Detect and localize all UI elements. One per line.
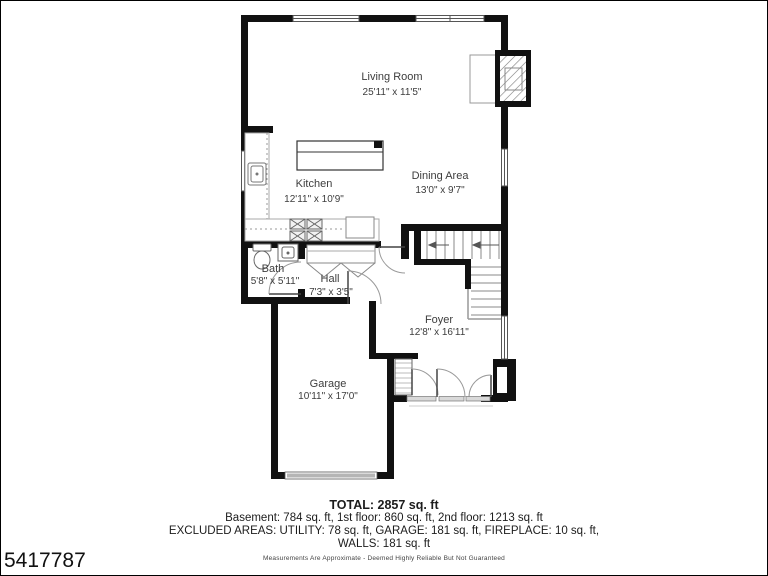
bath-sink-fixture — [278, 244, 298, 261]
label-kitchen: Kitchen — [296, 178, 333, 190]
listing-id: 5417787 — [4, 549, 86, 573]
dims-kitchen: 12'11" x 10'9" — [284, 194, 344, 205]
disclaimer-text: Measurements Are Approximate - Deemed Hi… — [1, 555, 767, 562]
label-garage: Garage — [310, 378, 347, 390]
walls-area: WALLS: 181 sq. ft — [1, 538, 767, 551]
excluded-areas: EXCLUDED AREAS: UTILITY: 78 sq. ft, GARA… — [1, 525, 767, 538]
label-foyer: Foyer — [425, 314, 453, 326]
bifold-door-right — [341, 263, 375, 277]
door-hall — [348, 271, 381, 304]
dims-foyer: 12'8" x 16'11" — [409, 327, 469, 338]
label-hall: Hall — [321, 273, 340, 285]
stair-arrows — [429, 242, 499, 248]
garage-door — [285, 472, 377, 479]
dims-dining-area: 13'0" x 9'7" — [415, 185, 465, 196]
floor-plan-page: Living Room 25'11" x 11'5" Kitchen 12'11… — [0, 0, 768, 576]
refrigerator-fixture — [346, 217, 374, 238]
foyer-closet — [395, 359, 412, 395]
dims-garage: 10'11" x 17'0" — [298, 391, 358, 402]
label-dining-area: Dining Area — [412, 170, 470, 182]
fireplace — [470, 50, 531, 107]
staircase — [427, 231, 501, 319]
floor-areas: Basement: 784 sq. ft, 1st floor: 860 sq.… — [1, 512, 767, 525]
kitchen-island — [297, 141, 383, 170]
label-bath: Bath — [262, 263, 285, 275]
hall-closet — [307, 245, 375, 277]
kitchen-sink — [248, 163, 266, 185]
floor-plan-drawing: Living Room 25'11" x 11'5" Kitchen 12'11… — [1, 1, 768, 576]
dims-living-room: 25'11" x 11'5" — [363, 87, 422, 98]
label-living-room: Living Room — [361, 71, 422, 83]
entry-sills — [407, 397, 490, 402]
porch-step — [497, 367, 507, 393]
area-summary: TOTAL: 2857 sq. ft Basement: 784 sq. ft,… — [1, 499, 767, 551]
door-front-left — [437, 369, 465, 397]
doors — [269, 247, 491, 397]
dims-hall: 7'3" x 3'5" — [309, 287, 353, 298]
door-foyer-closet — [412, 369, 438, 395]
total-area: TOTAL: 2857 sq. ft — [1, 499, 767, 512]
door-front-right — [469, 375, 491, 397]
dims-bath: 5'8" x 5'11" — [251, 276, 300, 287]
